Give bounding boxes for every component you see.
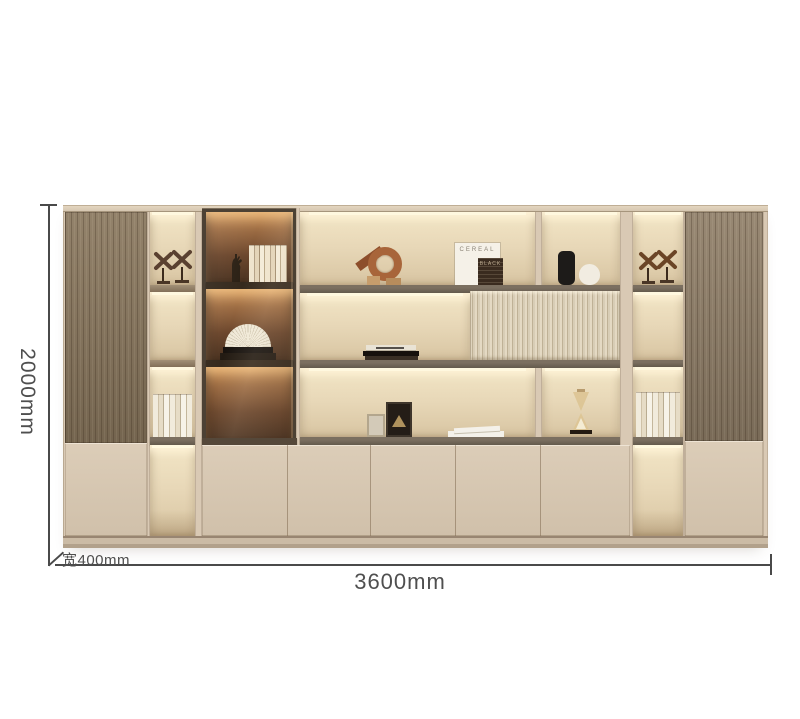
dark-photo-frame bbox=[386, 402, 412, 437]
middle-post-2 bbox=[535, 368, 542, 437]
middle-opening-row2 bbox=[300, 293, 470, 360]
white-open-book bbox=[448, 425, 504, 437]
divider-left-glass bbox=[195, 212, 202, 536]
small-photo-frame bbox=[367, 414, 385, 437]
hourglass-icon bbox=[567, 388, 595, 436]
right-wood-door bbox=[685, 212, 763, 441]
hourglass-niche bbox=[542, 368, 620, 437]
middle-shelf-2 bbox=[300, 360, 630, 368]
left-column-countertop bbox=[150, 437, 195, 445]
right-column-opening-3 bbox=[633, 367, 683, 437]
flat-book-stack bbox=[363, 340, 420, 360]
door-seam bbox=[287, 445, 288, 536]
cabinet-top-frame bbox=[63, 205, 768, 212]
glass-door-reflection bbox=[206, 212, 293, 441]
left-column-shelf-2 bbox=[150, 360, 195, 367]
cabinet: CEREAL BLACK bbox=[63, 205, 768, 548]
height-dimension-top-tick bbox=[40, 204, 57, 206]
spiral-sculpture bbox=[355, 245, 405, 285]
right-column-opening-1 bbox=[633, 212, 683, 285]
depth-label: 宽400mm bbox=[62, 549, 130, 570]
spiral-base-block-1 bbox=[367, 276, 380, 285]
left-column-opening-1 bbox=[150, 212, 195, 285]
door-seam bbox=[455, 445, 456, 536]
product-image: 2000mm 3600mm 宽400mm bbox=[0, 0, 800, 719]
door-seam bbox=[540, 445, 541, 536]
middle-countertop bbox=[300, 437, 630, 445]
glass-display-cabinet bbox=[202, 208, 297, 444]
right-column-shelf-2 bbox=[633, 360, 683, 367]
left-column-lower-niche bbox=[150, 445, 195, 536]
glass-cabinet-bottom-frame bbox=[202, 438, 297, 445]
left-column-shelf-1 bbox=[150, 285, 195, 292]
left-wood-door bbox=[65, 212, 147, 443]
right-column-opening-2 bbox=[633, 292, 683, 360]
width-label: 3600mm bbox=[330, 569, 470, 595]
glass-cabinet-interior bbox=[206, 212, 293, 441]
right-lower-door bbox=[685, 441, 763, 536]
x-wine-rack-icon bbox=[637, 249, 679, 285]
x-wine-rack-icon bbox=[152, 249, 194, 285]
height-label: 2000mm bbox=[15, 326, 39, 458]
base-plinth bbox=[63, 536, 768, 548]
middle-opening-row1: CEREAL BLACK bbox=[300, 212, 535, 285]
spiral-base-block-2 bbox=[386, 278, 401, 285]
book-row bbox=[153, 394, 192, 437]
black-vase bbox=[558, 251, 575, 285]
fluted-sliding-door bbox=[470, 291, 620, 360]
vase-niche bbox=[542, 212, 620, 285]
left-column-opening-3 bbox=[150, 367, 195, 437]
book-row bbox=[636, 392, 680, 437]
door-seam bbox=[370, 445, 371, 536]
right-edge bbox=[763, 212, 768, 536]
black-book: BLACK bbox=[478, 258, 503, 285]
lower-door-band bbox=[202, 445, 630, 536]
height-dimension-line bbox=[48, 205, 50, 566]
width-dimension-right-tick bbox=[770, 554, 772, 575]
right-column-countertop bbox=[633, 437, 683, 445]
right-column-lower-niche bbox=[633, 445, 683, 536]
left-lower-door bbox=[65, 443, 147, 536]
white-vase bbox=[579, 264, 600, 285]
right-column-shelf-1 bbox=[633, 285, 683, 292]
middle-opening-row3 bbox=[300, 368, 535, 437]
width-dimension-line bbox=[55, 564, 771, 566]
left-column-opening-2 bbox=[150, 292, 195, 360]
